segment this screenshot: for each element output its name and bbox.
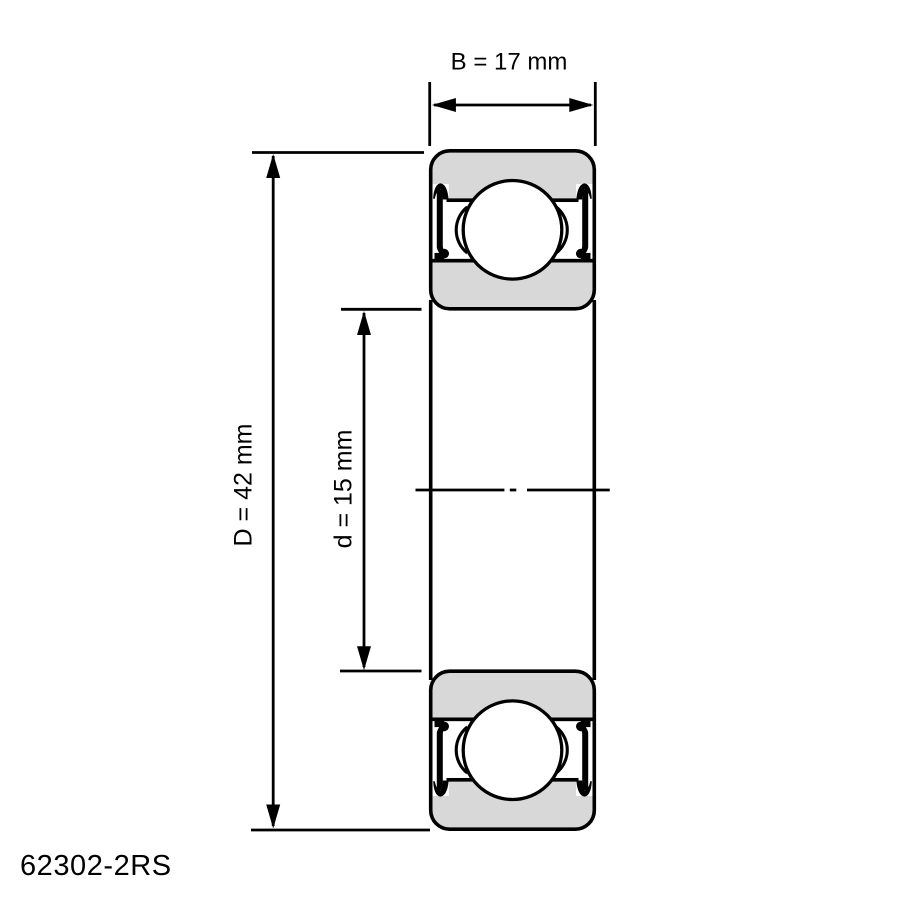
svg-text:62302-2RS: 62302-2RS <box>20 850 172 882</box>
svg-text:d = 15 mm: d = 15 mm <box>330 430 358 549</box>
svg-text:B = 17 mm: B = 17 mm <box>451 49 568 76</box>
svg-text:D = 42 mm: D = 42 mm <box>230 424 258 547</box>
